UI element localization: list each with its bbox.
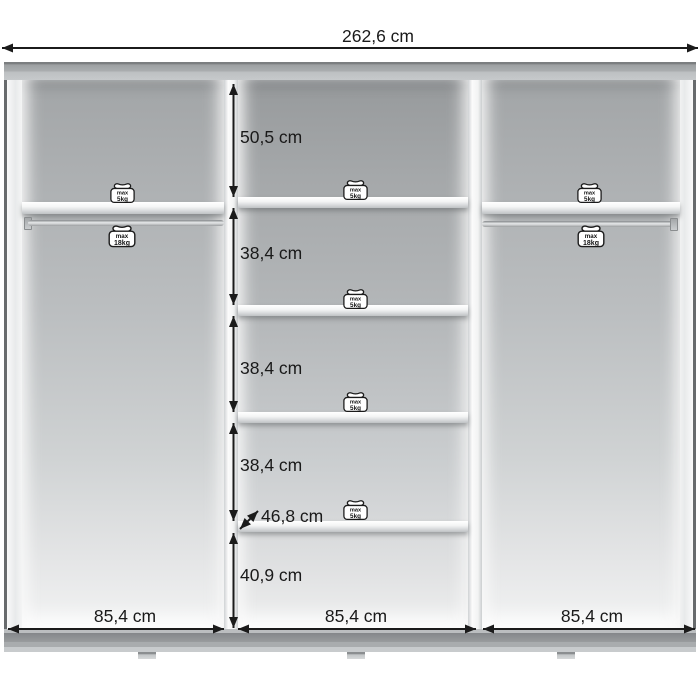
height-dimension-label-1: 50,5 cm xyxy=(240,126,302,148)
left-compartment xyxy=(22,80,224,629)
wardrobe-foot xyxy=(347,652,365,659)
wardrobe-top-board xyxy=(4,62,696,80)
height-dimension-label-2: 38,4 cm xyxy=(240,242,302,264)
wardrobe-foot xyxy=(138,652,156,659)
section-width-label-1: 85,4 cm xyxy=(94,605,156,627)
depth-dimension-label: 46,8 cm xyxy=(261,505,323,527)
wardrobe-foot xyxy=(557,652,575,659)
wardrobe-dimension-diagram: 262,6 cm 50,5 cm38,4 cm38,4 cm38,4 cm40,… xyxy=(0,0,700,700)
section-width-label-2: 85,4 cm xyxy=(325,605,387,627)
base-board-dark xyxy=(4,633,696,642)
middle-compartment xyxy=(238,80,468,629)
right-compartment-shelf xyxy=(482,202,680,214)
hanging-rail-bracket-right xyxy=(670,218,678,231)
height-dimension-label-4: 38,4 cm xyxy=(240,454,302,476)
height-dimension-label-3: 38,4 cm xyxy=(240,357,302,379)
hanging-rail-right xyxy=(482,221,674,227)
hanging-rail-left xyxy=(28,220,224,226)
middle-shelf-2 xyxy=(238,305,468,316)
right-compartment xyxy=(482,80,680,629)
middle-shelf-3 xyxy=(238,412,468,423)
divider-panel-right xyxy=(468,80,482,629)
middle-shelf-1 xyxy=(238,197,468,208)
section-width-label-3: 85,4 cm xyxy=(561,605,623,627)
total-width-dimension-label: 262,6 cm xyxy=(342,25,414,47)
wardrobe-right-side-panel xyxy=(678,80,696,652)
height-dimension-label-5: 40,9 cm xyxy=(240,564,302,586)
divider-panel-left xyxy=(224,80,238,629)
left-compartment-shelf xyxy=(22,202,224,214)
wardrobe-left-side-panel xyxy=(4,80,22,652)
